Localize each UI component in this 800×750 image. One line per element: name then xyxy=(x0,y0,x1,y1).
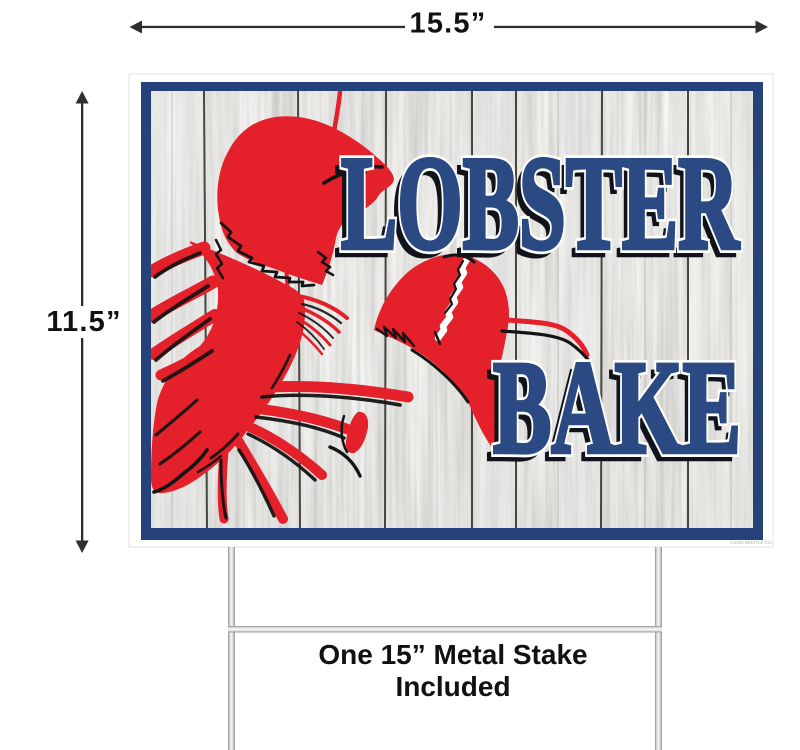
svg-text:15.5”: 15.5” xyxy=(410,8,487,40)
svg-text:BAKE: BAKE xyxy=(493,333,741,481)
svg-text:One 15” Metal Stake: One 15” Metal Stake xyxy=(318,639,587,670)
svg-text:Included: Included xyxy=(395,671,510,702)
svg-text:©2020 BEISTLE CO: ©2020 BEISTLE CO xyxy=(730,539,772,545)
svg-text:11.5”: 11.5” xyxy=(46,306,121,338)
svg-text:LOBSTER: LOBSTER xyxy=(341,129,740,277)
